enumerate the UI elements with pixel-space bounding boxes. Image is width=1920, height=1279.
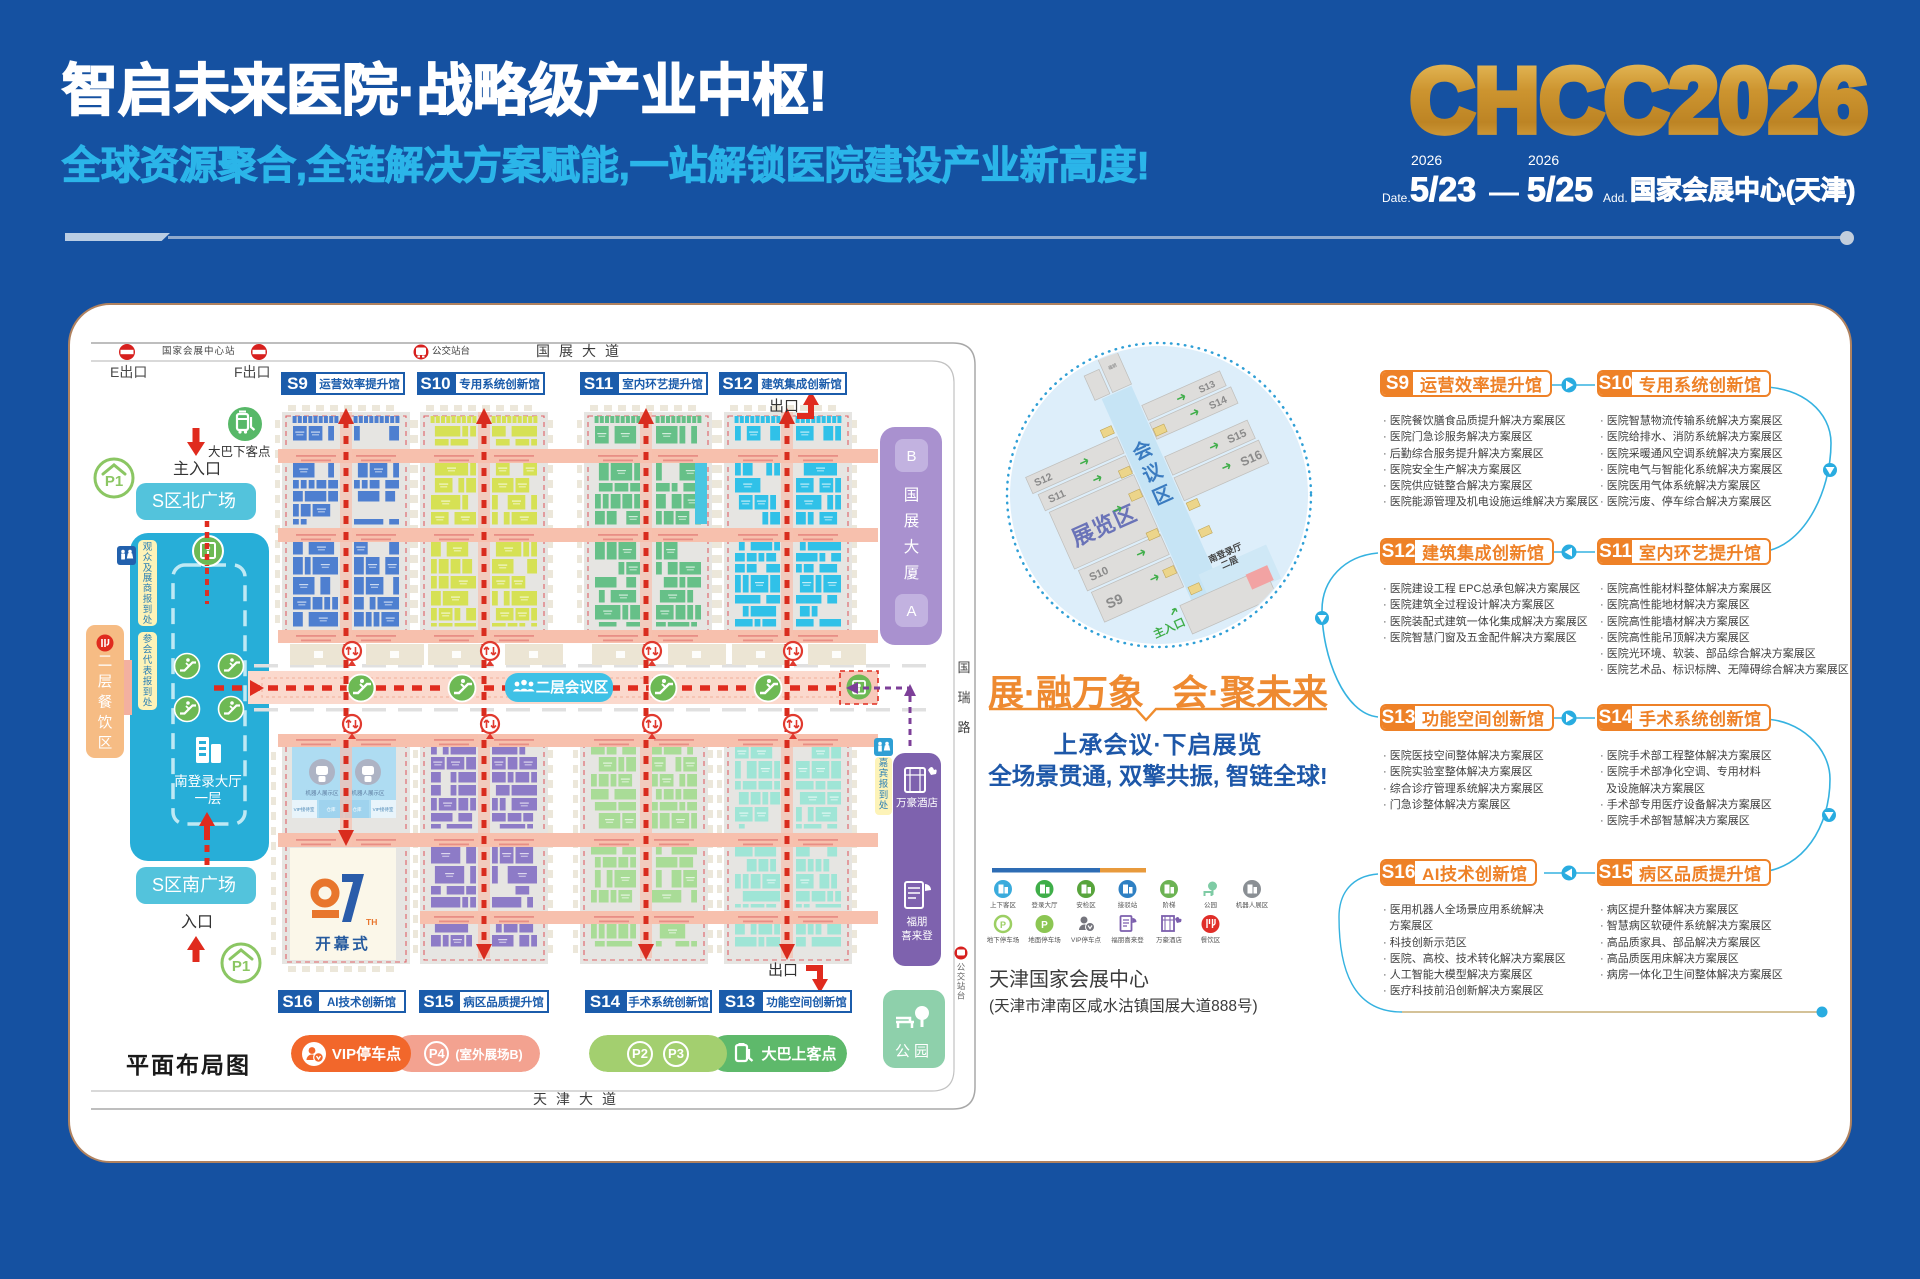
svg-text:到: 到	[879, 789, 889, 801]
svg-text:福朋喜来登: 福朋喜来登	[1111, 935, 1144, 944]
svg-text:P1: P1	[105, 473, 123, 490]
svg-text:开幕式: 开幕式	[315, 934, 371, 953]
svg-text:展: 展	[904, 513, 920, 530]
svg-text:P1: P1	[232, 958, 250, 975]
svg-text:站: 站	[957, 981, 966, 991]
svg-text:众: 众	[143, 552, 153, 563]
svg-text:路: 路	[957, 720, 970, 735]
svg-text:厦: 厦	[904, 565, 920, 582]
svg-text:VIP接待室: VIP接待室	[294, 806, 315, 813]
svg-text:机器人展示区: 机器人展示区	[351, 789, 385, 797]
svg-text:报: 报	[879, 778, 889, 790]
svg-text:商: 商	[143, 583, 153, 595]
svg-text:地面停车场: 地面停车场	[1028, 935, 1061, 944]
svg-text:处: 处	[143, 697, 153, 709]
svg-text:P: P	[1000, 920, 1006, 930]
svg-text:会: 会	[143, 644, 153, 656]
svg-text:到: 到	[143, 686, 153, 698]
svg-text:二层会议区: 二层会议区	[536, 679, 609, 697]
svg-text:安检区: 安检区	[1076, 900, 1096, 909]
svg-text:瑞: 瑞	[957, 690, 970, 705]
svg-text:处: 处	[143, 614, 153, 626]
svg-text:公: 公	[957, 962, 966, 972]
svg-text:机器人展区: 机器人展区	[1236, 900, 1269, 909]
svg-text:餐饮区: 餐饮区	[1201, 935, 1221, 944]
svg-text:餐: 餐	[98, 694, 113, 711]
svg-text:代: 代	[143, 655, 153, 666]
svg-text:处: 处	[879, 799, 889, 811]
svg-text:报: 报	[143, 593, 153, 605]
svg-text:TH: TH	[366, 917, 377, 927]
svg-text:喜来登: 喜来登	[901, 929, 933, 942]
svg-text:二: 二	[98, 654, 113, 670]
svg-text:表: 表	[143, 665, 153, 677]
svg-text:参: 参	[143, 633, 153, 645]
svg-text:万豪酒店: 万豪酒店	[1156, 935, 1183, 944]
svg-text:B: B	[906, 448, 916, 465]
svg-text:VIP接待室: VIP接待室	[373, 806, 394, 813]
svg-text:接驳站: 接驳站	[1118, 900, 1138, 909]
svg-text:及: 及	[143, 563, 153, 574]
svg-text:P: P	[1041, 920, 1048, 931]
svg-text:台: 台	[957, 991, 966, 1001]
svg-text:仓库: 仓库	[353, 806, 362, 813]
svg-text:A: A	[906, 603, 916, 620]
svg-text:观: 观	[143, 542, 153, 553]
svg-text:公园: 公园	[895, 1043, 933, 1060]
svg-text:国: 国	[957, 660, 970, 675]
svg-text:区: 区	[98, 736, 113, 752]
svg-text:到: 到	[143, 603, 153, 615]
svg-text:饮: 饮	[98, 715, 113, 732]
svg-text:嘉: 嘉	[879, 757, 889, 769]
svg-text:机器人展示区: 机器人展示区	[305, 789, 339, 797]
svg-text:公园: 公园	[1204, 901, 1217, 909]
svg-text:南登录大厅: 南登录大厅	[174, 774, 242, 789]
svg-text:阶梯: 阶梯	[1163, 900, 1177, 909]
svg-text:上下客区: 上下客区	[990, 900, 1017, 909]
svg-text:登录大厅: 登录大厅	[1032, 900, 1059, 909]
svg-text:层: 层	[98, 675, 113, 691]
svg-text:大: 大	[904, 538, 920, 556]
svg-text:交: 交	[957, 972, 966, 982]
svg-text:展: 展	[143, 573, 153, 584]
svg-text:福朋: 福朋	[907, 915, 928, 928]
svg-text:宾: 宾	[879, 768, 889, 780]
svg-text:VIP停车点: VIP停车点	[1071, 935, 1101, 944]
svg-text:国: 国	[904, 487, 920, 504]
svg-text:一层: 一层	[195, 791, 222, 806]
svg-text:万豪酒店: 万豪酒店	[896, 796, 938, 809]
svg-text:地下停车场: 地下停车场	[987, 935, 1020, 944]
svg-text:报: 报	[143, 675, 153, 687]
svg-text:仓库: 仓库	[327, 806, 336, 813]
